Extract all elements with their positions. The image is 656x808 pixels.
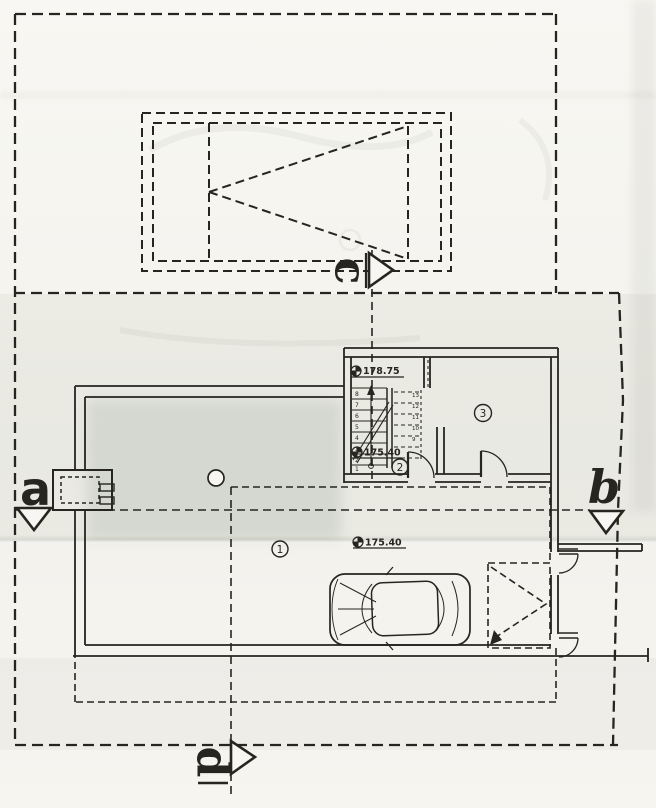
level-marker-upper: 178.75 [351, 366, 404, 377]
section-letter-b: b [588, 460, 620, 514]
door-swing-arc [408, 452, 434, 478]
section-arrow-c [369, 253, 393, 287]
level-marker-garage: 175.40 [353, 537, 406, 549]
door-swing-arc [559, 638, 578, 657]
room-number: 3 [480, 408, 487, 420]
roof-outline [14, 14, 623, 745]
tread-number: 12 [412, 404, 419, 410]
stair-wall-stub [424, 357, 430, 388]
floor-plan-drawing: 8 7 6 5 4 3 2 1 13 12 11 10 9 [0, 0, 656, 808]
south-wall [73, 645, 648, 662]
east-wall [551, 348, 558, 634]
door-swing-arc [559, 554, 578, 573]
block-south-wall [344, 474, 551, 482]
building-walls [73, 348, 648, 662]
side-mirror [386, 567, 393, 650]
section-marker-d: d [187, 741, 256, 783]
tread-number: 7 [355, 402, 359, 409]
elevation-value: 175.40 [364, 448, 401, 459]
column-circle [208, 470, 224, 486]
car-top-view-icon [330, 567, 470, 650]
tread-number: 11 [412, 415, 419, 421]
room-number: 1 [277, 544, 284, 556]
elevation-value: 175.40 [365, 538, 402, 549]
tread-number: 13 [412, 393, 419, 399]
tread-number: 1 [355, 466, 359, 473]
room-number: 2 [397, 462, 404, 474]
swing-direction-arrow [491, 567, 546, 637]
door-leaf [559, 633, 578, 638]
bleed-through-ghosts [120, 120, 549, 343]
tread-number: 5 [355, 424, 359, 431]
tread-number: 4 [355, 435, 359, 442]
chimney-fixture [53, 470, 114, 510]
tread-number: 9 [412, 437, 416, 443]
tread-number: 10 [412, 426, 419, 432]
section-arrow-a [17, 508, 51, 530]
section-lines [16, 250, 590, 795]
level-marker-stair-foot: 175.40 [352, 447, 402, 459]
scanned-floor-plan-page: 8 7 6 5 4 3 2 1 13 12 11 10 9 [0, 0, 656, 808]
tread-number: 8 [355, 391, 359, 398]
lobby-partition-wall [437, 427, 444, 474]
west-wall [75, 386, 85, 656]
block-north-wall [344, 348, 558, 357]
elevation-value: 178.75 [363, 366, 400, 377]
walk-line-arrow [367, 385, 375, 395]
section-marker-c: c [325, 253, 394, 288]
room-labels: 1 2 3 [272, 405, 492, 558]
porch-north-wall [558, 544, 642, 551]
tread-number: 6 [355, 413, 359, 420]
doors [408, 451, 578, 657]
swing-arrow-head [490, 630, 502, 645]
block-west-wall [344, 348, 351, 483]
section-marker-a: a [17, 462, 51, 530]
north-terrace-wall [75, 386, 344, 397]
upper-floor-outline [75, 487, 556, 702]
door-swing-arc [481, 451, 507, 477]
